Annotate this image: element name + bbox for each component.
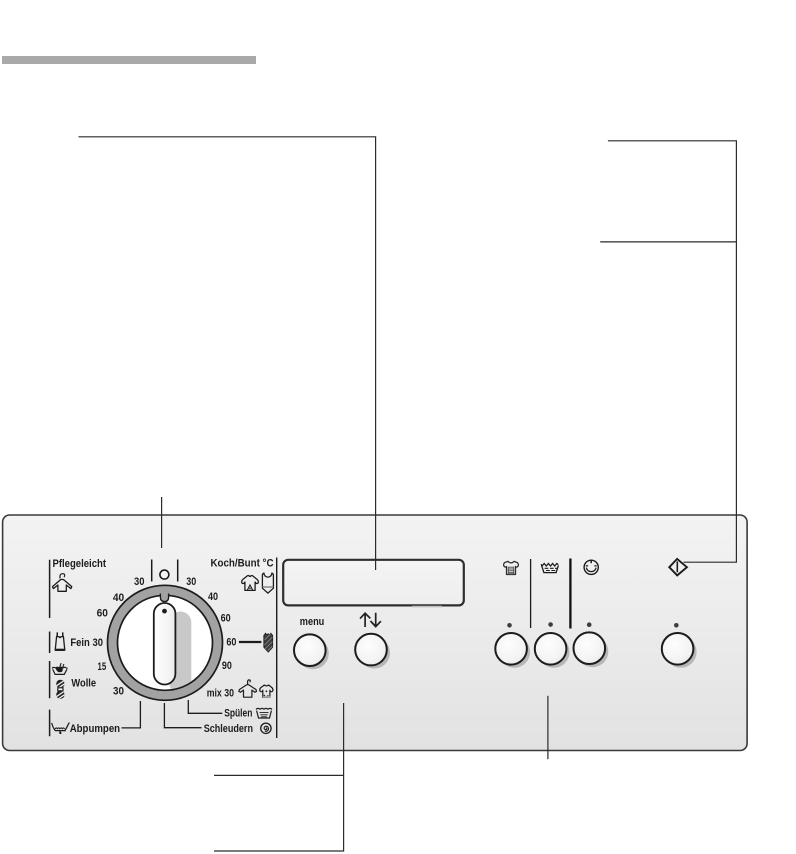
svg-text:60: 60 — [221, 613, 231, 625]
svg-text:60: 60 — [97, 608, 108, 620]
svg-text:Koch/Bunt °C: Koch/Bunt °C — [211, 558, 274, 570]
svg-text:30: 30 — [113, 685, 124, 697]
svg-text:Pflegeleicht: Pflegeleicht — [53, 558, 107, 570]
svg-text:mix 30: mix 30 — [207, 688, 234, 700]
svg-text:Fein 30: Fein 30 — [70, 637, 103, 649]
svg-text:Spülen: Spülen — [224, 708, 252, 720]
svg-text:menu: menu — [300, 616, 325, 628]
svg-text:15: 15 — [98, 661, 107, 673]
svg-text:Abpumpen: Abpumpen — [70, 723, 121, 735]
svg-text:40: 40 — [113, 592, 124, 604]
svg-text:Schleudern: Schleudern — [204, 723, 254, 735]
svg-text:30: 30 — [186, 576, 196, 588]
svg-text:30: 30 — [134, 576, 145, 588]
svg-text:40: 40 — [208, 591, 218, 603]
svg-text:Wolle: Wolle — [71, 678, 96, 690]
svg-text:90: 90 — [222, 660, 232, 672]
svg-text:60: 60 — [226, 637, 236, 649]
